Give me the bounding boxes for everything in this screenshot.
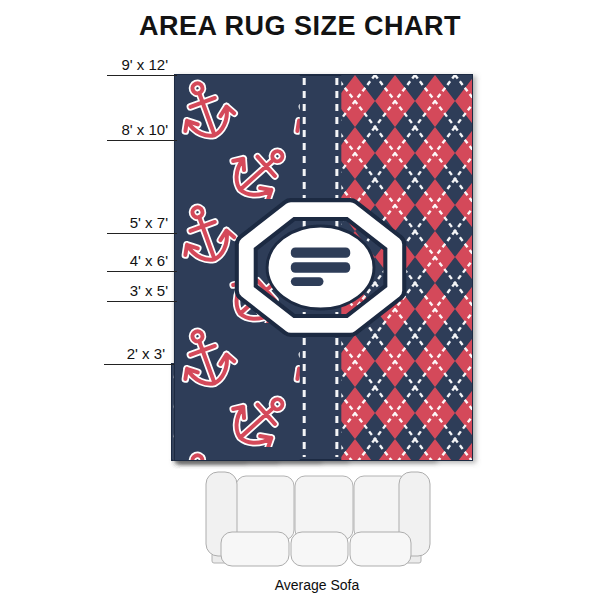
rug-size-label-row: 3' x 5' xyxy=(107,282,177,302)
rug-9x12 xyxy=(175,75,472,460)
average-sofa-illustration xyxy=(206,472,430,566)
rug-size-label: 4' x 6' xyxy=(130,252,168,269)
rug-size-label: 2' x 3' xyxy=(127,345,165,362)
sofa-seat-cushion xyxy=(350,532,411,566)
rug-size-label-row: 5' x 7' xyxy=(107,214,177,234)
rug-size-label: 9' x 12' xyxy=(121,56,168,73)
nested-rugs xyxy=(172,75,472,460)
sofa-back-cushion xyxy=(236,476,294,540)
rug-size-label-row: 2' x 3' xyxy=(104,345,174,365)
sofa-seat-cushion xyxy=(291,532,348,566)
rug-size-label: 8' x 10' xyxy=(121,121,168,138)
rug-size-chart-graphic: 9' x 12'8' x 10'5' x 7'4' x 6'3' x 5'2' … xyxy=(0,0,600,600)
sofa-seat-cushion xyxy=(221,532,289,566)
size-labels: 9' x 12'8' x 10'5' x 7'4' x 6'3' x 5'2' … xyxy=(104,56,177,365)
rug-size-label-row: 4' x 6' xyxy=(107,252,177,272)
sofa-caption: Average Sofa xyxy=(275,577,360,593)
rug-size-label: 5' x 7' xyxy=(130,214,168,231)
monogram-badge xyxy=(246,210,395,326)
rug-size-label: 3' x 5' xyxy=(130,282,168,299)
rug-size-label-row: 9' x 12' xyxy=(107,56,177,76)
sofa-back-cushion xyxy=(295,476,353,540)
rug-size-label-row: 8' x 10' xyxy=(107,121,177,141)
